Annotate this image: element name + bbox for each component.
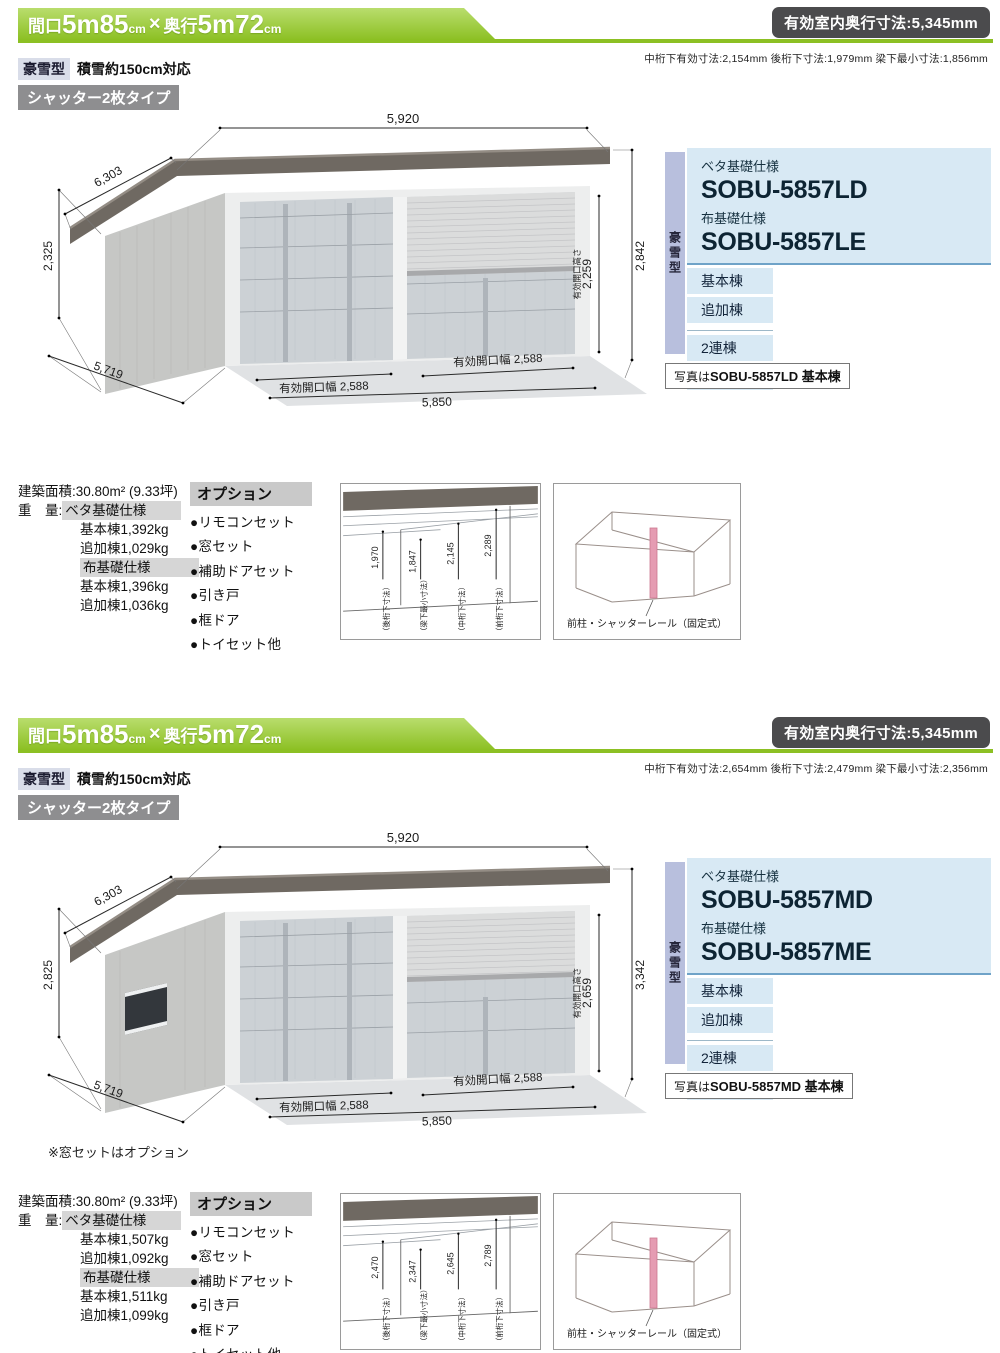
photo-caption-model: SOBU-5857MD 基本棟 bbox=[710, 1079, 844, 1094]
type-row: 豪雪型 積雪約150cm対応 bbox=[18, 58, 191, 80]
banner-okuyuki-label: 奥行 bbox=[164, 12, 198, 37]
weight-nuno-basic: 基本棟1,511kg bbox=[80, 1287, 199, 1306]
beta-foundation-label: ベタ基礎仕様 bbox=[701, 156, 991, 175]
option-kamachi-door: ●框ドア bbox=[190, 609, 312, 629]
options-title: オプション bbox=[190, 1192, 312, 1216]
snow-load-note: 積雪約150cm対応 bbox=[77, 769, 191, 789]
center-pillar bbox=[393, 916, 407, 1079]
center-pillar bbox=[393, 197, 407, 360]
weight-beta-header: ベタ基礎仕様 bbox=[62, 501, 181, 520]
option-window: ●窓セット bbox=[190, 1245, 312, 1265]
banner-cm-b: cm bbox=[264, 732, 281, 750]
snow-type-badge: 豪雪型 bbox=[18, 768, 70, 790]
area-label: 建築面積: bbox=[18, 482, 76, 501]
cross-section-drawing: 2,470 2,347 2,645 2,789 （後桁下寸法） （梁下最小寸法）… bbox=[341, 1194, 540, 1349]
front-pillar-box: 前柱・シャッターレール（固定式） bbox=[553, 1193, 741, 1350]
spec-info-block: 建築面積:30.80m² (9.33坪) 重 量:ベタ基礎仕様 基本棟1,507… bbox=[18, 1192, 199, 1325]
cs-dim-3: 2,145 bbox=[445, 542, 455, 564]
option-toi-set: ●トイセット他 bbox=[190, 633, 312, 653]
times-symbol: × bbox=[149, 723, 161, 746]
side-wall bbox=[105, 193, 225, 394]
product-section-md: 間口 5m85 cm × 奥行 5m72 cm 有効室内奥行寸法:5,345mm… bbox=[0, 710, 1000, 1353]
beta-model-number: SOBU-5857MD bbox=[701, 885, 991, 915]
weight-nuno-header: 布基礎仕様 bbox=[80, 1268, 199, 1287]
cs-label-2: （梁下最小寸法） bbox=[419, 1286, 429, 1346]
size-banner: 間口 5m85 cm × 奥行 5m72 cm bbox=[18, 8, 496, 40]
cs-label-1: （後桁下寸法） bbox=[381, 583, 391, 635]
option-remote: ●リモコンセット bbox=[190, 511, 312, 531]
option-remote: ●リモコンセット bbox=[190, 1221, 312, 1241]
option-toi-set: ●トイセット他 bbox=[190, 1343, 312, 1353]
front-pillar-label: 前柱・シャッターレール（固定式） bbox=[567, 1327, 727, 1340]
front-pillar-drawing: 前柱・シャッターレール（固定式） bbox=[554, 484, 740, 639]
dim-width-bottom: 5,850 bbox=[422, 394, 453, 408]
beta-model-number: SOBU-5857LD bbox=[701, 175, 991, 205]
size-banner: 間口 5m85 cm × 奥行 5m72 cm bbox=[18, 718, 496, 750]
snow-type-badge: 豪雪型 bbox=[18, 58, 70, 80]
photo-caption-prefix: 写真は bbox=[674, 370, 710, 384]
garage-illustration: 5,920 6,303 2,825 5,719 3,342 2,659 有効開口… bbox=[25, 818, 650, 1136]
weight-beta-header: ベタ基礎仕様 bbox=[62, 1211, 181, 1230]
nuno-foundation-label: 布基礎仕様 bbox=[701, 208, 991, 227]
effective-depth-badge: 有効室内奥行寸法:5,345mm bbox=[772, 717, 990, 748]
cs-dim-4: 2,289 bbox=[483, 534, 493, 556]
weight-nuno-additional: 追加棟1,099kg bbox=[80, 1306, 199, 1325]
building-type-additional: 追加棟 bbox=[687, 1007, 773, 1033]
options-block: オプション ●リモコンセット ●窓セット ●補助ドアセット ●引き戸 ●框ドア … bbox=[190, 1192, 312, 1353]
interior-post bbox=[283, 204, 288, 362]
cs-label-1: （後桁下寸法） bbox=[381, 1293, 391, 1345]
catalog-page: 間口 5m85 cm × 奥行 5m72 cm 有効室内奥行寸法:5,345mm… bbox=[0, 0, 1000, 1353]
weight-beta-basic: 基本棟1,507kg bbox=[80, 1230, 199, 1249]
cross-section-drawing: 1,970 1,847 2,145 2,289 （後桁下寸法） （梁下最小寸法）… bbox=[341, 484, 540, 639]
area-label: 建築面積: bbox=[18, 1192, 76, 1211]
building-type-basic: 基本棟 bbox=[687, 268, 773, 294]
nuno-model-number: SOBU-5857LE bbox=[701, 227, 991, 257]
cs-label-2: （梁下最小寸法） bbox=[419, 576, 429, 636]
clearance-note: 中桁下有効寸法:2,154mm 後桁下寸法:1,979mm 梁下最小寸法:1,8… bbox=[644, 51, 988, 66]
interior-post bbox=[483, 278, 488, 356]
cross-section-box: 1,970 1,847 2,145 2,289 （後桁下寸法） （梁下最小寸法）… bbox=[340, 483, 541, 640]
options-title: オプション bbox=[190, 482, 312, 506]
banner-okuyuki-value: 5m72 bbox=[198, 721, 265, 747]
garage-illustration: 5,920 6,303 2,325 5,719 2,842 2,259 有効開口… bbox=[25, 108, 650, 408]
dim-opening-height: 2,259 bbox=[580, 259, 594, 289]
shutter-type-badge: シャッター2枚タイプ bbox=[18, 85, 179, 110]
cs-dim-4: 2,789 bbox=[483, 1244, 493, 1266]
nuno-model-number: SOBU-5857ME bbox=[701, 937, 991, 967]
banner-maguchi-value: 5m85 bbox=[62, 721, 129, 747]
option-sliding-door: ●引き戸 bbox=[190, 1294, 312, 1314]
panel-rule bbox=[687, 973, 991, 975]
building-type-additional: 追加棟 bbox=[687, 297, 773, 323]
dim-height-left: 2,325 bbox=[41, 241, 55, 271]
banner-maguchi-value: 5m85 bbox=[62, 11, 129, 37]
banner-maguchi-label: 間口 bbox=[28, 722, 62, 747]
snow-type-vertical-tab: 豪雪型 bbox=[665, 152, 685, 354]
interior-post bbox=[483, 997, 488, 1075]
shutter-type-badge: シャッター2枚タイプ bbox=[18, 795, 179, 820]
times-symbol: × bbox=[149, 13, 161, 36]
weight-nuno-header: 布基礎仕様 bbox=[80, 558, 199, 577]
cs-dim-1: 2,470 bbox=[370, 1256, 380, 1278]
option-subdoor: ●補助ドアセット bbox=[190, 560, 312, 580]
option-sliding-door: ●引き戸 bbox=[190, 584, 312, 604]
banner-maguchi-label: 間口 bbox=[28, 12, 62, 37]
panel-separator bbox=[687, 330, 773, 331]
building-type-basic: 基本棟 bbox=[687, 978, 773, 1004]
snow-type-vertical-tab: 豪雪型 bbox=[665, 862, 685, 1064]
front-pillar-highlight bbox=[650, 528, 657, 598]
interior-post bbox=[283, 923, 288, 1081]
weight-nuno-additional: 追加棟1,036kg bbox=[80, 596, 199, 615]
cs-dim-2: 2,347 bbox=[408, 1260, 418, 1282]
option-window: ●窓セット bbox=[190, 535, 312, 555]
weight-label: 重 量: bbox=[18, 501, 62, 520]
option-subdoor: ●補助ドアセット bbox=[190, 1270, 312, 1290]
banner-underline bbox=[18, 749, 993, 753]
cross-section-box: 2,470 2,347 2,645 2,789 （後桁下寸法） （梁下最小寸法）… bbox=[340, 1193, 541, 1350]
building-type-2ren: 2連棟 bbox=[687, 1045, 773, 1071]
banner-okuyuki-label: 奥行 bbox=[164, 722, 198, 747]
weight-nuno-basic: 基本棟1,396kg bbox=[80, 577, 199, 596]
left-opening-interior bbox=[240, 197, 393, 364]
interior-post bbox=[347, 203, 352, 361]
spec-info-block: 建築面積:30.80m² (9.33坪) 重 量:ベタ基礎仕様 基本棟1,392… bbox=[18, 482, 199, 615]
front-pillar-label: 前柱・シャッターレール（固定式） bbox=[567, 617, 727, 630]
cs-dim-1: 1,970 bbox=[370, 546, 380, 568]
panel-rule bbox=[687, 263, 991, 265]
front-pillar-highlight bbox=[650, 1238, 657, 1308]
opening-height-label: 有効開口高さ bbox=[572, 967, 582, 1018]
snow-load-note: 積雪約150cm対応 bbox=[77, 59, 191, 79]
product-section-ld: 間口 5m85 cm × 奥行 5m72 cm 有効室内奥行寸法:5,345mm… bbox=[0, 0, 1000, 645]
area-value: 30.80m² (9.33坪) bbox=[76, 484, 178, 499]
weight-beta-additional: 追加棟1,092kg bbox=[80, 1249, 199, 1268]
dim-width-top: 5,920 bbox=[387, 830, 420, 845]
cs-label-3: （中桁下寸法） bbox=[456, 583, 466, 635]
option-kamachi-door: ●框ドア bbox=[190, 1319, 312, 1339]
banner-okuyuki-value: 5m72 bbox=[198, 11, 265, 37]
left-opening-interior bbox=[240, 916, 393, 1083]
cs-label-3: （中桁下寸法） bbox=[456, 1293, 466, 1345]
banner-underline bbox=[18, 39, 993, 43]
opening-height-label: 有効開口高さ bbox=[572, 248, 582, 299]
dim-width-top: 5,920 bbox=[387, 111, 420, 126]
window-option-note: ※窓セットはオプション bbox=[48, 1142, 189, 1161]
dim-width-bottom: 5,850 bbox=[422, 1113, 453, 1128]
cs-dim-3: 2,645 bbox=[445, 1252, 455, 1274]
photo-caption: 写真はSOBU-5857MD 基本棟 bbox=[665, 1073, 853, 1099]
clearance-note: 中桁下有効寸法:2,654mm 後桁下寸法:2,479mm 梁下最小寸法:2,3… bbox=[644, 761, 988, 776]
weight-beta-additional: 追加棟1,029kg bbox=[80, 539, 199, 558]
nuno-foundation-label: 布基礎仕様 bbox=[701, 918, 991, 937]
panel-separator bbox=[687, 1040, 773, 1041]
weight-label: 重 量: bbox=[18, 1211, 62, 1230]
effective-depth-badge: 有効室内奥行寸法:5,345mm bbox=[772, 7, 990, 38]
type-row: 豪雪型 積雪約150cm対応 bbox=[18, 768, 191, 790]
model-panel-main: ベタ基礎仕様 SOBU-5857LD 布基礎仕様 SOBU-5857LE 基本棟… bbox=[687, 148, 991, 390]
dim-depth-top: 6,303 bbox=[92, 163, 125, 190]
banner-cm-a: cm bbox=[129, 22, 146, 40]
weight-beta-basic: 基本棟1,392kg bbox=[80, 520, 199, 539]
options-block: オプション ●リモコンセット ●窓セット ●補助ドアセット ●引き戸 ●框ドア … bbox=[190, 482, 312, 653]
interior-post bbox=[347, 922, 352, 1080]
dim-opening-height: 2,659 bbox=[580, 978, 594, 1008]
dim-height-right: 3,342 bbox=[633, 960, 647, 990]
banner-cm-b: cm bbox=[264, 22, 281, 40]
area-value: 30.80m² (9.33坪) bbox=[76, 1194, 178, 1209]
front-pillar-box: 前柱・シャッターレール（固定式） bbox=[553, 483, 741, 640]
building-type-2ren: 2連棟 bbox=[687, 335, 773, 361]
dim-height-right: 2,842 bbox=[633, 241, 647, 271]
cs-label-4: （前桁下寸法） bbox=[494, 583, 504, 635]
dim-depth-top: 6,303 bbox=[92, 882, 125, 909]
cs-label-4: （前桁下寸法） bbox=[494, 1293, 504, 1345]
banner-cm-a: cm bbox=[129, 732, 146, 750]
beta-foundation-label: ベタ基礎仕様 bbox=[701, 866, 991, 885]
cs-dim-2: 1,847 bbox=[408, 550, 418, 572]
photo-caption: 写真はSOBU-5857LD 基本棟 bbox=[665, 363, 850, 389]
model-panel-main: ベタ基礎仕様 SOBU-5857MD 布基礎仕様 SOBU-5857ME 基本棟… bbox=[687, 858, 991, 1100]
dim-height-left: 2,825 bbox=[41, 960, 55, 990]
photo-caption-model: SOBU-5857LD 基本棟 bbox=[710, 369, 841, 384]
photo-caption-prefix: 写真は bbox=[674, 1080, 710, 1094]
front-pillar-drawing: 前柱・シャッターレール（固定式） bbox=[554, 1194, 740, 1349]
